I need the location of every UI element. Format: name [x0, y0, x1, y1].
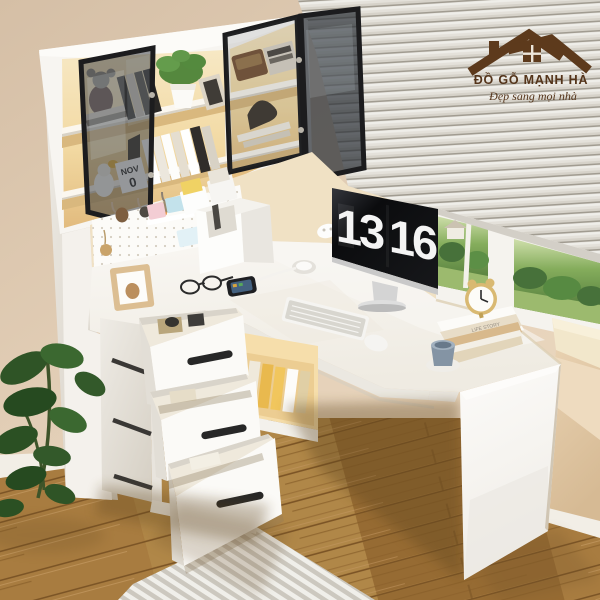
- svg-text:16: 16: [389, 210, 437, 272]
- svg-text:ĐỒ GỖ MẠNH HÀ: ĐỒ GỖ MẠNH HÀ: [474, 72, 589, 87]
- svg-text:Đẹp sang mọi nhà: Đẹp sang mọi nhà: [488, 89, 577, 103]
